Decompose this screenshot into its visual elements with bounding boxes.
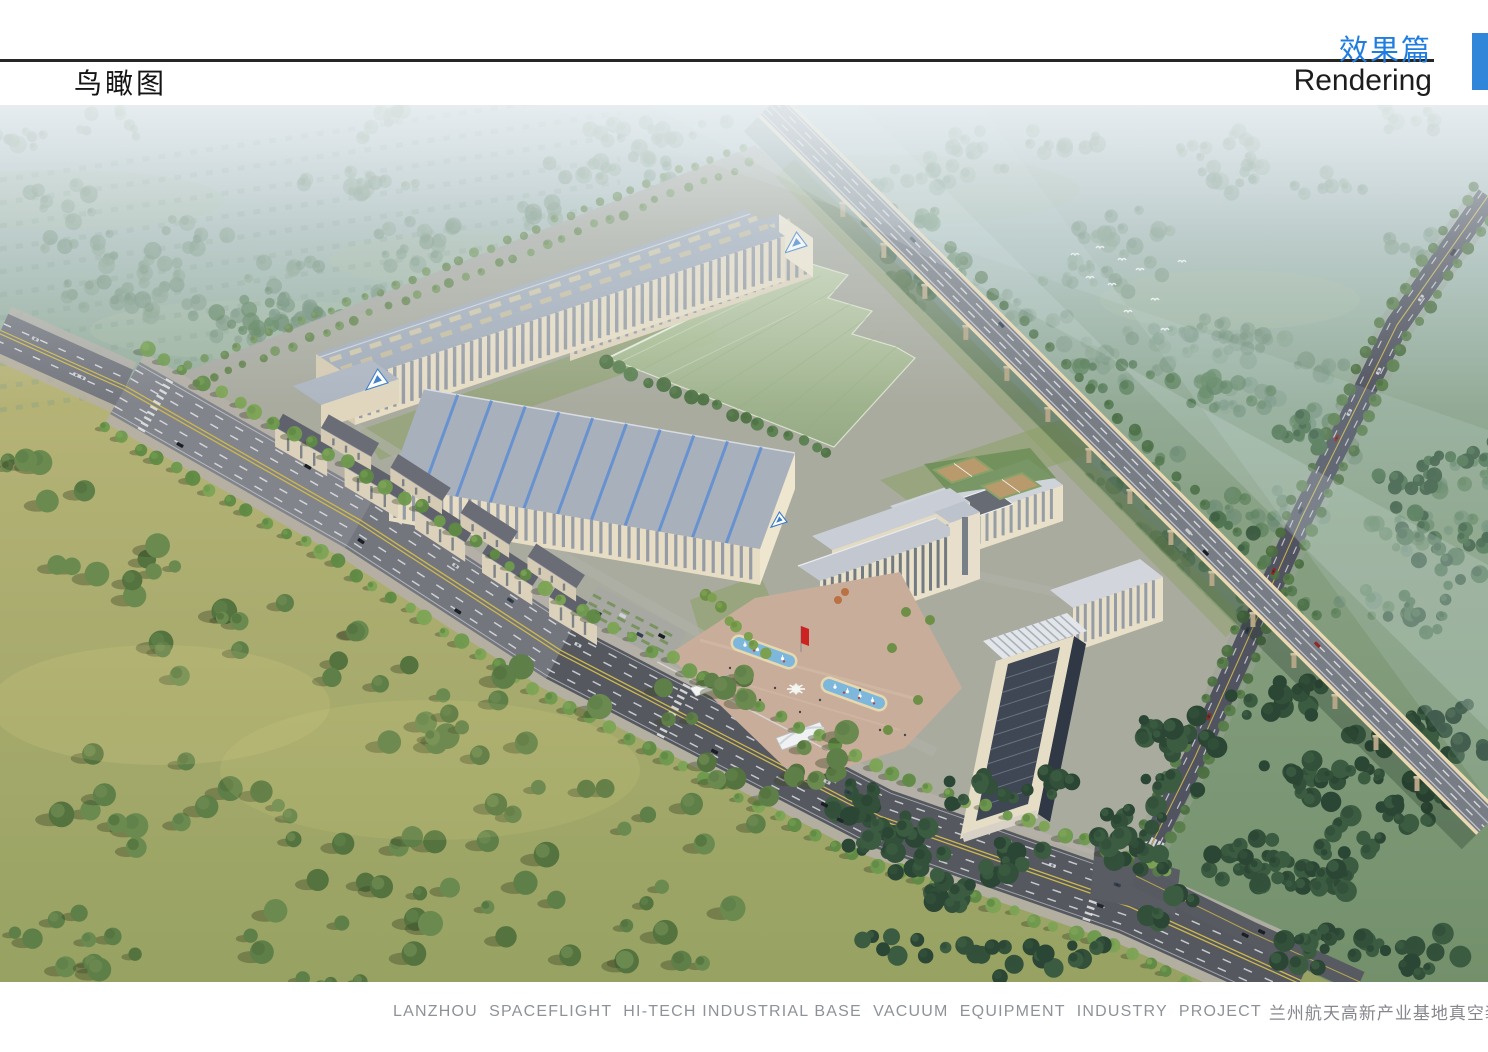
header-rule — [0, 59, 1434, 62]
sculpture — [787, 684, 805, 695]
chapter-title-cn: 效果篇 — [1339, 27, 1432, 69]
aerial-rendering — [0, 105, 1488, 982]
caption-english: LANZHOU SPACEFLIGHT HI-TECH INDUSTRIAL B… — [393, 1003, 1262, 1021]
corner-accent-block — [1472, 33, 1488, 90]
section-title: 鸟瞰图 — [74, 62, 167, 102]
footer-caption: LANZHOU SPACEFLIGHT HI-TECH INDUSTRIAL B… — [393, 999, 1488, 1024]
chapter-title-en: Rendering — [1294, 64, 1432, 98]
aerial-rendering-canvas — [0, 105, 1488, 982]
caption-chinese: 兰州航天高新产业基地真空装备产业园项目 — [1269, 999, 1488, 1024]
presentation-page: 鸟瞰图 效果篇 Rendering LANZHOU SPACEFLIGHT HI… — [0, 0, 1488, 1052]
